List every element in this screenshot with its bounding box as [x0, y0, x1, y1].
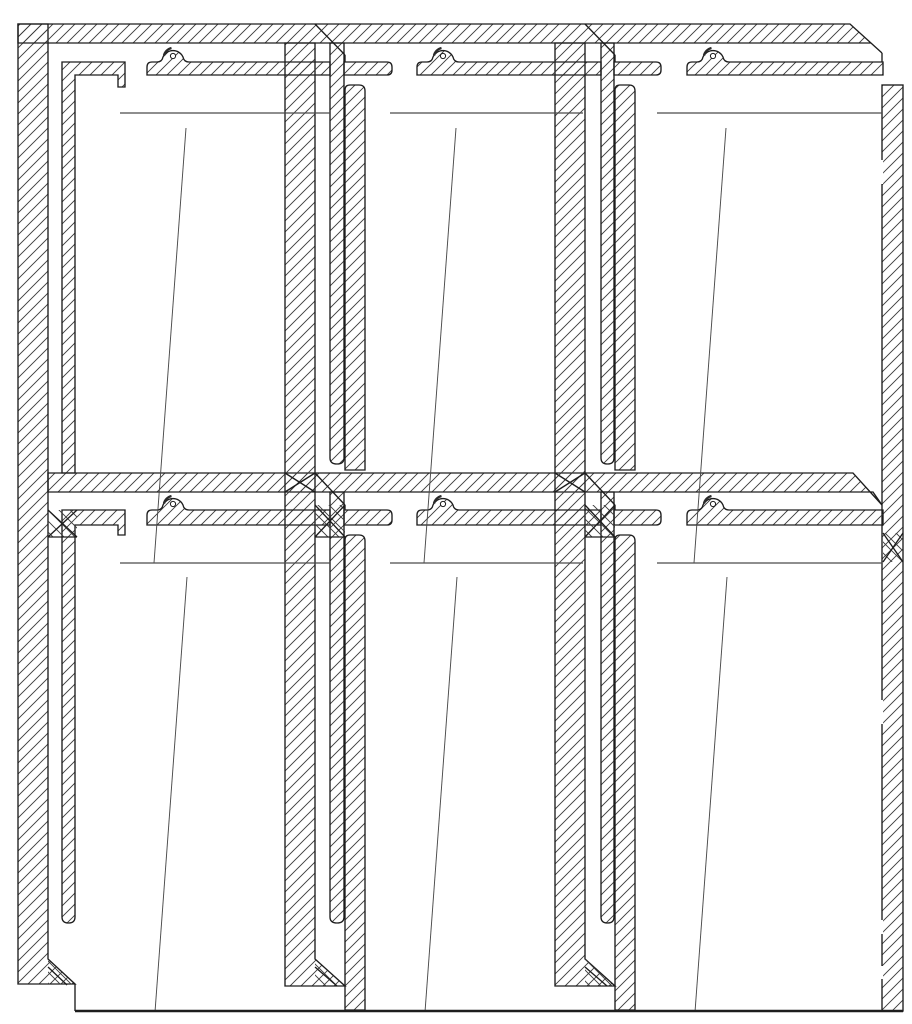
boss-strip-mid-3 — [687, 499, 883, 525]
stop-strip-mid-a — [344, 510, 392, 525]
mullion-2-stop-profile-bottom — [615, 535, 635, 1010]
cad-drawing — [0, 0, 912, 1024]
glass-pane-mark — [154, 128, 186, 563]
glazing-L-profile-top-left — [62, 62, 125, 473]
mullion-1-inner-profile-top — [330, 43, 344, 464]
screw-boss-circle — [710, 53, 715, 58]
screw-boss-circle — [440, 53, 445, 58]
stop-strip-top-b — [614, 62, 661, 75]
cad-viewport — [0, 0, 912, 1024]
stop-strip-mid-b — [614, 510, 661, 525]
screw-boss-circle — [170, 501, 175, 506]
glazing-L-profile-bottom-left — [62, 510, 125, 923]
head-bar — [18, 24, 882, 53]
glass-pane-mark — [694, 128, 726, 563]
mullion-1-stop-profile-top — [345, 85, 365, 470]
screw-boss-circle — [710, 501, 715, 506]
mullion-2-inner-profile-bottom — [601, 492, 614, 923]
mullion-1-stop-profile-bottom — [345, 535, 365, 1010]
glass-pane-mark — [695, 577, 727, 1012]
boss-strip-top-3 — [687, 51, 883, 75]
glass-pane-mark — [155, 577, 187, 1012]
mullion-2-stop-profile-top — [615, 85, 635, 470]
stop-strip-top-a — [344, 62, 392, 75]
screw-boss-circle — [170, 53, 175, 58]
mullion-2-inner-profile-top — [601, 43, 614, 464]
mullion-1-inner-profile-bottom — [330, 492, 344, 923]
glass-pane-mark — [425, 577, 457, 1012]
glass-pane-mark — [424, 128, 456, 563]
section-geometry — [18, 24, 903, 1012]
screw-boss-circle — [440, 501, 445, 506]
